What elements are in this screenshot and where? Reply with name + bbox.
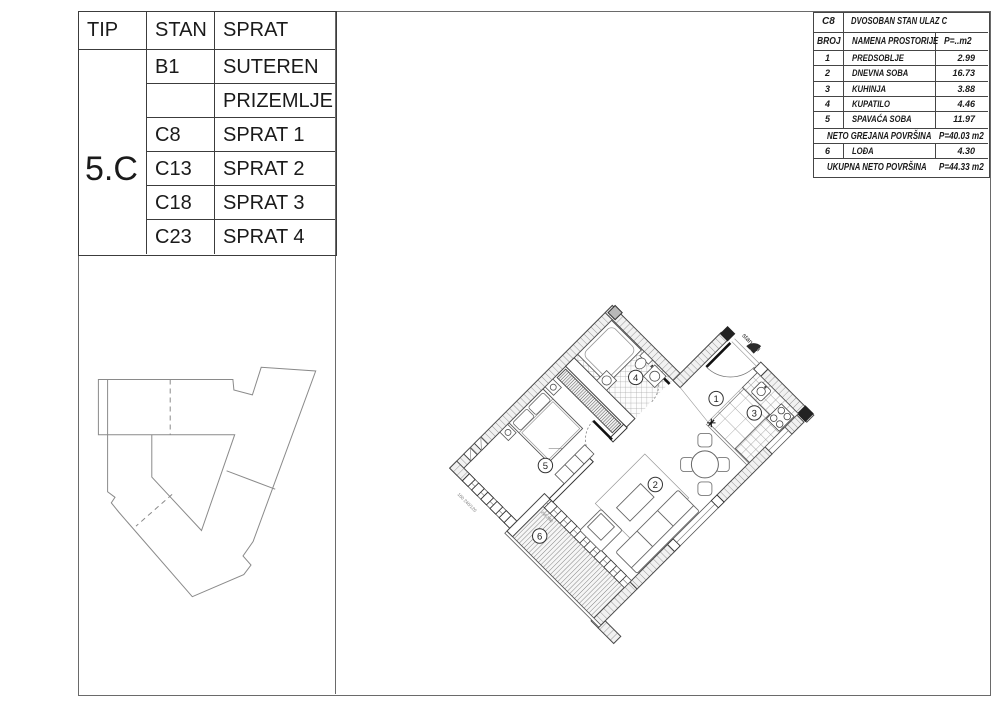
svg-text:160 240/120: 160 240/120	[456, 492, 478, 514]
svg-text:6: 6	[537, 531, 542, 542]
svg-text:1: 1	[713, 394, 718, 405]
svg-text:2: 2	[653, 480, 658, 491]
svg-text:5: 5	[543, 461, 548, 472]
svg-text:4: 4	[633, 373, 638, 384]
svg-text:3: 3	[752, 408, 757, 419]
